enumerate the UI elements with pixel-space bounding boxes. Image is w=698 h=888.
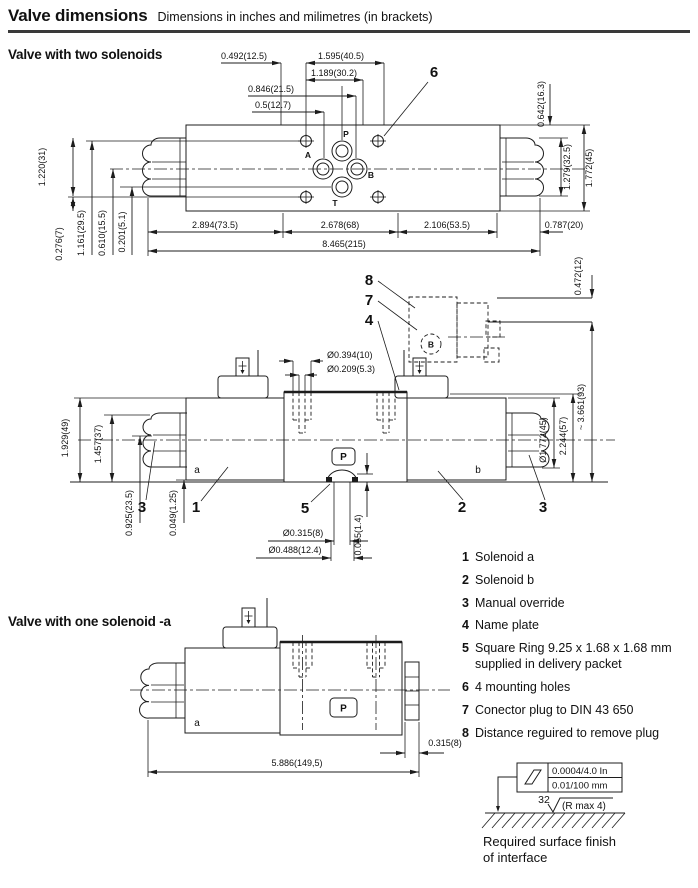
dim-label: 0.610(15.5) (97, 210, 107, 256)
dim-label: Ø0.209(5.3) (327, 364, 375, 374)
valve-body-one-solenoid: a P (130, 642, 450, 735)
legend-item-number: 7 (462, 702, 475, 718)
dim-label: 1.595(40.5) (318, 51, 364, 61)
top-view-drawing: P A B T 6 0.492(12.5) 1.595(40.5) 1.189(… (0, 42, 698, 274)
finish-spec-inch: 0.0004/4.0 In (552, 766, 607, 777)
callout-1-label: 1 (192, 499, 200, 516)
dim-label: 1.189(30.2) (311, 68, 357, 78)
valve-body-side-view: a b (70, 392, 615, 482)
dim-label: 0.049(1.25) (168, 490, 178, 536)
legend-item-number: 4 (462, 617, 475, 633)
dim-label: 0.787(20) (545, 220, 584, 230)
roughness-mark: 32 (R max 4) (538, 794, 613, 812)
body-label-a: a (194, 465, 200, 476)
right-knurl (500, 138, 544, 196)
legend-item-number: 5 (462, 640, 475, 673)
dim-label: 2.106(53.5) (424, 220, 470, 230)
callout-6-label: 6 (430, 64, 438, 81)
dim-label: 0.642(16.3) (536, 81, 546, 127)
datasheet-page: Valve dimensionsDimensions in inches and… (0, 0, 698, 888)
plug-b-base (395, 376, 448, 398)
dim-label: 0.472(12) (573, 257, 583, 296)
callout-8-label: 8 (365, 272, 373, 289)
page-title: Valve dimensions (8, 6, 147, 25)
dim-label: ~ 3.661(93) (576, 384, 586, 430)
dim-label: 0.492(12.5) (221, 51, 267, 61)
surface-finish-caption: Required surface finish of interface (483, 834, 653, 867)
legend-item-text: Solenoid a (475, 549, 698, 565)
legend-item: 64 mounting holes (462, 679, 698, 695)
dim-label: 8.465(215) (322, 239, 366, 249)
dim-label: Ø0.315(8) (283, 528, 324, 538)
connector-plug (223, 598, 277, 648)
dim-label: 1.220(31) (37, 148, 47, 187)
port-label-b: B (368, 170, 374, 180)
dim-label: Ø0.488(12.4) (268, 545, 321, 555)
legend-item: 1Solenoid a (462, 549, 698, 565)
page-subtitle: Dimensions in inches and milimetres (in … (157, 10, 432, 24)
header-rule (8, 30, 690, 33)
caption-line-2: of interface (483, 850, 653, 866)
legend-item-text: Manual override (475, 595, 698, 611)
hatched-surface (482, 813, 625, 828)
legend-item: 2Solenoid b (462, 572, 698, 588)
dim-label: 0.925(23.5) (124, 490, 134, 536)
p-port-label: P (340, 452, 347, 463)
side-view-drawing: a b B (0, 255, 698, 567)
legend-item: 4Name plate (462, 617, 698, 633)
dim-label: 2.244(57) (558, 417, 568, 456)
callout-2-label: 2 (458, 499, 466, 516)
top-dimensions: 0.492(12.5) 1.595(40.5) 1.189(30.2) 0.84… (37, 51, 594, 261)
body-label-a: a (194, 718, 200, 729)
legend-item: 5Square Ring 9.25 x 1.68 x 1.68 mm suppl… (462, 640, 698, 673)
solenoid-b-body (407, 398, 506, 480)
finish-spec-mm: 0.01/100 mm (552, 781, 608, 792)
dim-label: 2.678(68) (321, 220, 360, 230)
page-header: Valve dimensionsDimensions in inches and… (8, 6, 692, 26)
plug-b-marker-label: B (428, 340, 434, 350)
r-max-label: (R max 4) (562, 801, 606, 812)
dim-label: 0.055(1.4) (353, 514, 363, 555)
legend-list: 1Solenoid a 2Solenoid b 3Manual override… (462, 549, 698, 747)
dim-label: 0.201(5.1) (117, 211, 127, 252)
dim-label: 0.5(12.7) (255, 100, 291, 110)
knurl (140, 663, 185, 718)
dim-label: Ø0.394(10) (327, 350, 373, 360)
legend-item-number: 3 (462, 595, 475, 611)
legend-item-text: Square Ring 9.25 x 1.68 x 1.68 mm suppli… (475, 640, 698, 673)
p-port-label: P (340, 704, 347, 715)
flatness-icon (525, 770, 541, 784)
dim-label: 0.315(8) (428, 738, 462, 748)
caption-line-1: Required surface finish (483, 834, 653, 850)
port-label-a: A (305, 150, 311, 160)
dim-label: 1.457(37) (93, 425, 103, 464)
bolt-holes-hidden (293, 635, 385, 730)
legend-item-number: 6 (462, 679, 475, 695)
body-label-b: b (475, 465, 481, 476)
finish-spec-box: 0.0004/4.0 In 0.01/100 mm (517, 763, 622, 792)
ports: P A B T (305, 129, 374, 208)
callout-3-right-label: 3 (539, 499, 547, 516)
bolt-holes-hidden (293, 392, 395, 433)
one-solenoid-drawing: a P 0.315(8) 5.886(149,5) (0, 565, 520, 795)
legend-item-text: Conector plug to DIN 43 650 (475, 702, 698, 718)
callout-7-label: 7 (365, 292, 373, 309)
callout-6-leader (384, 82, 428, 136)
port-label-t: T (332, 198, 338, 208)
dim-label: 2.894(73.5) (192, 220, 238, 230)
legend-item: 7Conector plug to DIN 43 650 (462, 702, 698, 718)
legend-item-text: Distance reguired to remove plug (475, 725, 698, 741)
dim-label: 0.846(21.5) (248, 84, 294, 94)
legend-item-number: 1 (462, 549, 475, 565)
surface-finish-symbol: 0.0004/4.0 In 0.01/100 mm 32 (R max 4) (480, 748, 698, 888)
callout-4-label: 4 (365, 312, 374, 329)
finish-leader (496, 777, 517, 812)
plug-removal-outline: B (409, 297, 592, 362)
legend-item-text: 4 mounting holes (475, 679, 698, 695)
dim-label: 1.772(45) (584, 149, 594, 188)
legend-item-text: Name plate (475, 617, 698, 633)
legend-item-number: 8 (462, 725, 475, 741)
dim-label: 1.929(49) (60, 419, 70, 458)
port-label-p: P (343, 129, 349, 139)
solenoid-a-body (186, 398, 284, 480)
plug-a-base (218, 376, 268, 398)
valve-center-body (280, 642, 402, 735)
dim-label: Ø1.772(45) (538, 417, 548, 463)
legend-item: 3Manual override (462, 595, 698, 611)
callout-5-label: 5 (301, 500, 309, 517)
plug-base (223, 627, 277, 648)
legend-item-number: 2 (462, 572, 475, 588)
dim-label: 5.886(149,5) (271, 758, 322, 768)
callout-3-left-label: 3 (138, 499, 146, 516)
dim-label: 1.161(29.5) (76, 210, 86, 256)
legend-item-text: Solenoid b (475, 572, 698, 588)
legend-item: 8Distance reguired to remove plug (462, 725, 698, 741)
dim-label: 1.279(32.5) (562, 144, 572, 190)
